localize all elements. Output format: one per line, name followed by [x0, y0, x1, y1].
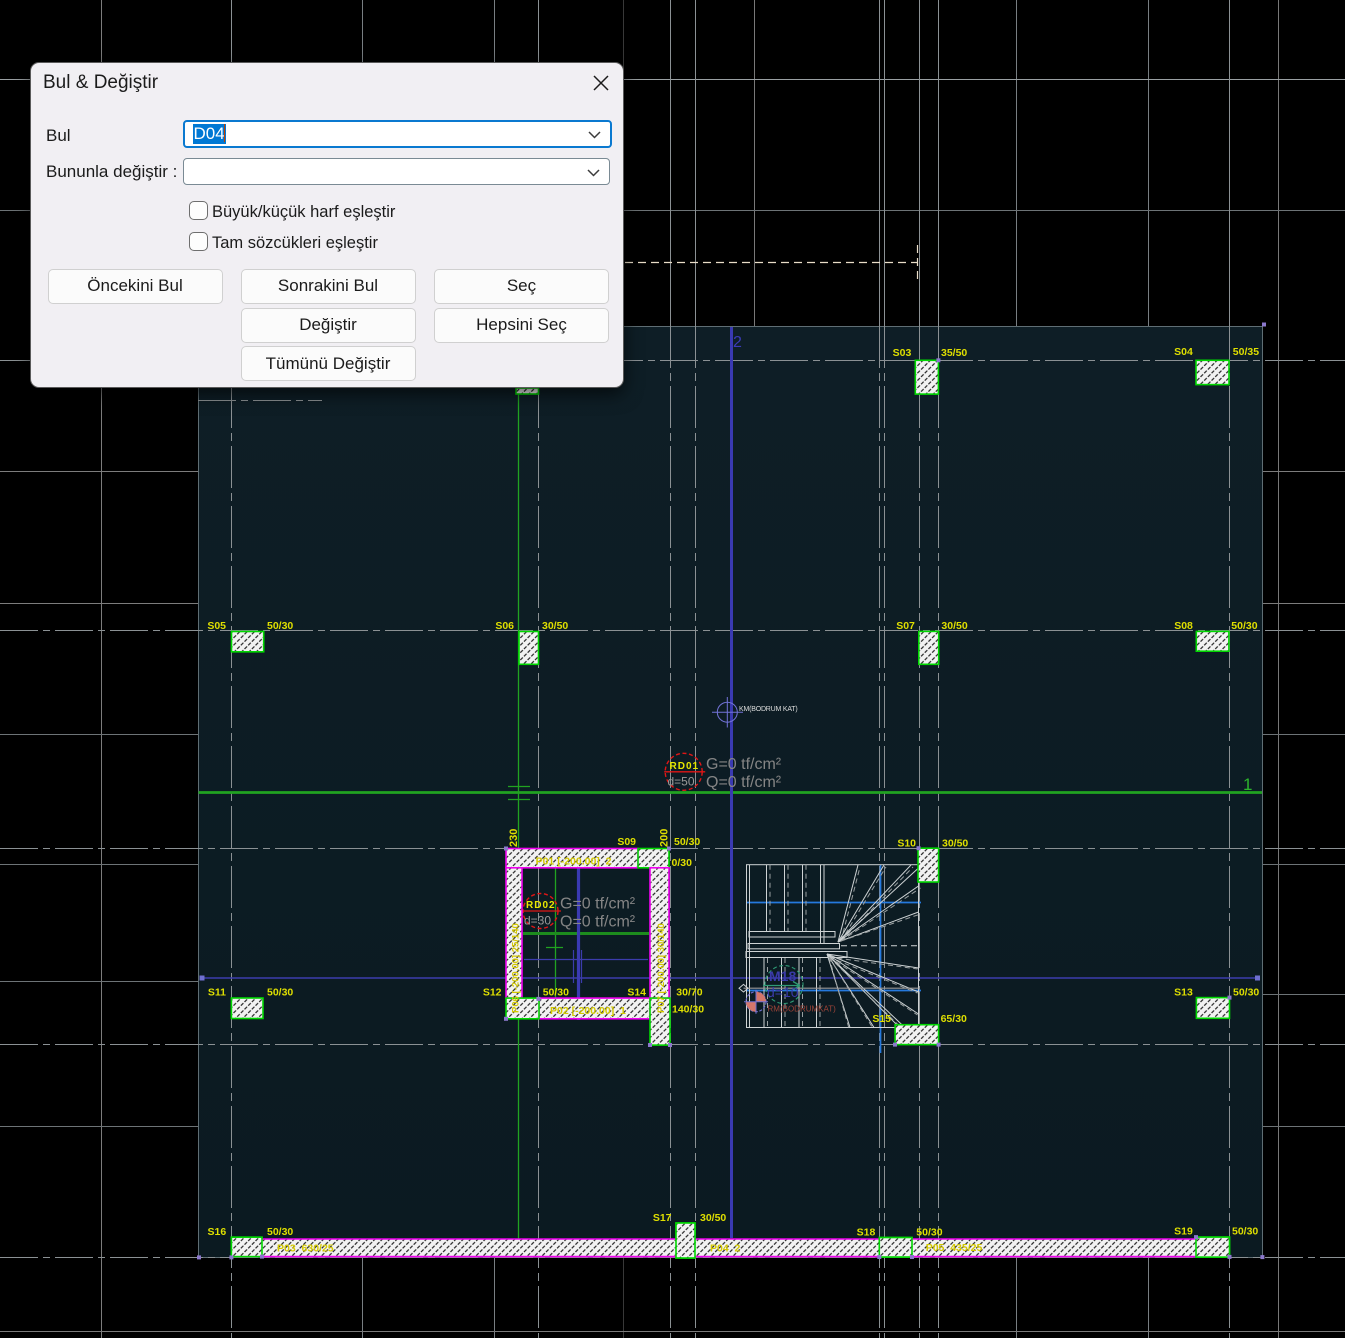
- svg-text:S08: S08: [1174, 620, 1193, 632]
- svg-text:S06: S06: [495, 620, 514, 632]
- svg-text:Q=0 tf/cm²: Q=0 tf/cm²: [560, 914, 636, 931]
- svg-text:S09: S09: [617, 836, 636, 848]
- svg-text:S07: S07: [896, 620, 915, 632]
- svg-text:50/30: 50/30: [267, 987, 293, 999]
- svg-text:30/50: 30/50: [942, 838, 968, 850]
- svg-text:d=50: d=50: [668, 774, 695, 788]
- svg-text:50/30: 50/30: [1233, 987, 1259, 999]
- svg-text:d=10: d=10: [767, 984, 799, 1000]
- svg-text:50/35: 50/35: [1233, 346, 1259, 358]
- svg-text:50/30: 50/30: [916, 1227, 942, 1239]
- svg-text:KM(BODRUM KAT): KM(BODRUM KAT): [739, 706, 798, 713]
- svg-text:230: 230: [508, 829, 520, 847]
- svg-text:RD01: RD01: [670, 761, 700, 772]
- svg-text:1: 1: [1243, 775, 1252, 794]
- svg-text:140/30: 140/30: [672, 1004, 704, 1016]
- svg-text:30/50: 30/50: [542, 620, 568, 632]
- svg-text:G=0 tf/cm²: G=0 tf/cm²: [706, 756, 782, 773]
- svg-text:0/30: 0/30: [672, 857, 693, 869]
- svg-text:G=0 tf/cm²: G=0 tf/cm²: [560, 896, 636, 913]
- svg-text:50/30: 50/30: [674, 836, 700, 848]
- svg-text:2: 2: [733, 334, 742, 351]
- svg-text:50/30: 50/30: [267, 1226, 293, 1238]
- svg-text:S15: S15: [872, 1013, 891, 1025]
- svg-text:S14: S14: [627, 987, 646, 999]
- svg-text:P01 [-200.00] 2: P01 [-200.00] 2: [536, 856, 612, 868]
- svg-text:30/50: 30/50: [941, 620, 967, 632]
- svg-text:50/30: 50/30: [1232, 1226, 1258, 1238]
- svg-text:M18: M18: [769, 968, 796, 984]
- svg-text:S12: S12: [483, 987, 502, 999]
- svg-text:S19: S19: [1174, 1226, 1193, 1238]
- svg-text:30/70: 30/70: [676, 987, 702, 999]
- svg-text:P05 435/25: P05 435/25: [926, 1242, 983, 1254]
- svg-text:Q=0 tf/cm²: Q=0 tf/cm²: [706, 774, 782, 791]
- svg-text:S17: S17: [653, 1212, 672, 1224]
- svg-text:P07 [-200.00] 30/140: P07 [-200.00] 30/140: [656, 923, 667, 1013]
- svg-text:P02 [-200.00] 1: P02 [-200.00] 1: [550, 1005, 626, 1017]
- svg-text:S16: S16: [208, 1226, 227, 1238]
- svg-text:S03: S03: [893, 347, 912, 359]
- svg-text:30/50: 30/50: [700, 1212, 726, 1224]
- svg-text:P06 [-200.00] 25/140: P06 [-200.00] 25/140: [511, 923, 522, 1013]
- svg-text:50/30: 50/30: [1231, 620, 1257, 632]
- svg-text:50/30: 50/30: [543, 987, 569, 999]
- svg-text:P04 2: P04 2: [710, 1243, 741, 1255]
- svg-text:RM(BODRUMKAT): RM(BODRUMKAT): [768, 1005, 837, 1014]
- svg-text:RD02: RD02: [526, 900, 556, 911]
- svg-text:S04: S04: [1174, 346, 1193, 358]
- svg-text:50/30: 50/30: [267, 620, 293, 632]
- svg-text:65/30: 65/30: [941, 1013, 967, 1025]
- svg-text:S11: S11: [208, 987, 226, 999]
- svg-text:S05: S05: [207, 620, 226, 632]
- svg-text:d=30: d=30: [524, 914, 551, 928]
- svg-text:200: 200: [659, 829, 671, 847]
- svg-text:S10: S10: [897, 838, 916, 850]
- svg-text:P03 630/25: P03 630/25: [277, 1243, 334, 1255]
- svg-text:35/50: 35/50: [941, 347, 967, 359]
- svg-text:S13: S13: [1174, 987, 1193, 999]
- svg-text:S18: S18: [857, 1227, 876, 1239]
